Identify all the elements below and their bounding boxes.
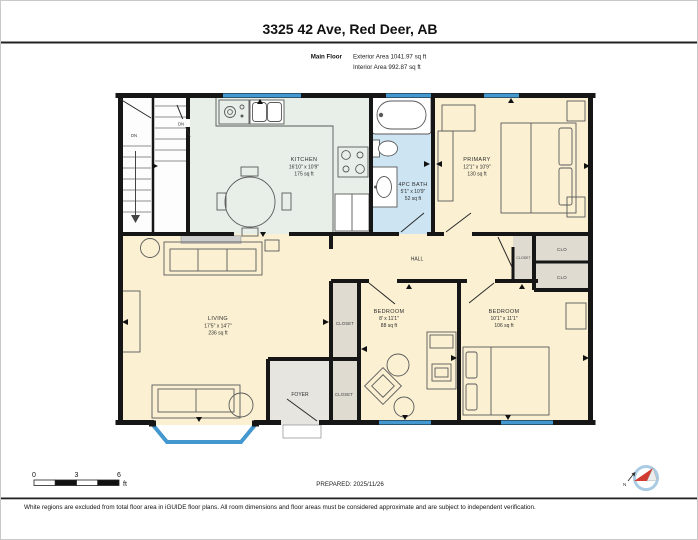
bath-area: 52 sq ft <box>405 196 422 202</box>
hall-label: HALL <box>411 257 424 263</box>
compass-icon: N <box>623 467 658 490</box>
bath-name: 4PC BATH <box>398 182 427 188</box>
room-bedroom1-fill <box>359 281 459 425</box>
bedroom1-name: BEDROOM <box>374 309 405 315</box>
bedroom2-dims: 10'1" x 11'1" <box>490 316 517 322</box>
closet-bedroom1-fill <box>331 281 359 359</box>
interior-area-label: Interior Area 992.87 sq ft <box>353 64 421 71</box>
scale-bar: 0 3 6 ft <box>32 472 127 488</box>
bedroom2-area: 106 sq ft <box>494 323 514 329</box>
bedroom1-area: 88 sq ft <box>381 323 398 329</box>
scale-seg-2 <box>55 480 76 486</box>
stair-dn-left-label: DN <box>131 133 137 138</box>
floor-plan-canvas: 3325 42 Ave, Red Deer, AB Main Floor Ext… <box>1 1 698 540</box>
scale-tick-6: 6 <box>117 472 121 479</box>
closet-foyer-label: CLOSET <box>335 392 353 397</box>
header: 3325 42 Ave, Red Deer, AB Main Floor Ext… <box>1 21 698 71</box>
compass-north-label: N <box>623 482 626 487</box>
living-area: 236 sq ft <box>208 331 228 337</box>
primary-name: PRIMARY <box>463 157 490 163</box>
front-step <box>283 425 321 438</box>
living-dims: 17'5" x 14'7" <box>204 324 232 330</box>
bedroom1-dims: 8' x 11'1" <box>379 316 399 322</box>
footer-disclaimer-text: White regions are excluded from total fl… <box>24 504 536 511</box>
living-name: LIVING <box>208 316 228 322</box>
primary-dims: 12'1" x 10'9" <box>463 165 491 171</box>
clo-top-label: CLO <box>557 247 567 252</box>
footer-divider <box>1 498 698 500</box>
compass-north-arrow-line <box>628 474 634 481</box>
bath-vanity <box>372 167 397 207</box>
kitchen-dims: 16'10" x 10'9" <box>289 165 319 171</box>
bedroom2-name: BEDROOM <box>489 309 520 315</box>
bathtub <box>372 96 431 134</box>
footer: White regions are excluded from total fl… <box>1 498 698 512</box>
foyer-label: FOYER <box>291 392 309 398</box>
primary-area: 130 sq ft <box>467 172 487 178</box>
scale-tick-3: 3 <box>75 472 79 479</box>
prepared-date: PREPARED: 2025/11/26 <box>316 481 384 488</box>
scale-unit: ft <box>123 481 127 488</box>
scale-seg-1 <box>34 480 55 486</box>
clo-bottom-label: CLO <box>557 275 567 280</box>
floor-plan-page: 3325 42 Ave, Red Deer, AB Main Floor Ext… <box>0 0 698 540</box>
stair-dn-right-label: DN <box>178 122 184 127</box>
fridge <box>335 194 369 231</box>
kitchen-name: KITCHEN <box>291 157 318 163</box>
floor-label: Main Floor <box>311 54 343 61</box>
closet-bedroom1-label: CLOSET <box>336 321 354 326</box>
scale-tick-0: 0 <box>32 472 36 479</box>
scale-seg-3 <box>77 480 98 486</box>
kitchen-area: 175 sq ft <box>294 172 314 178</box>
page-title: 3325 42 Ave, Red Deer, AB <box>262 21 437 37</box>
closet-hall-label: CLOSET <box>516 256 530 260</box>
exterior-area-label: Exterior Area 1041.97 sq ft <box>353 54 427 61</box>
toilet <box>373 140 398 157</box>
scale-seg-4 <box>98 480 119 486</box>
kitchen-sink <box>250 100 284 124</box>
bath-dims: 5'1" x 10'9" <box>401 189 426 195</box>
header-divider <box>1 42 698 44</box>
